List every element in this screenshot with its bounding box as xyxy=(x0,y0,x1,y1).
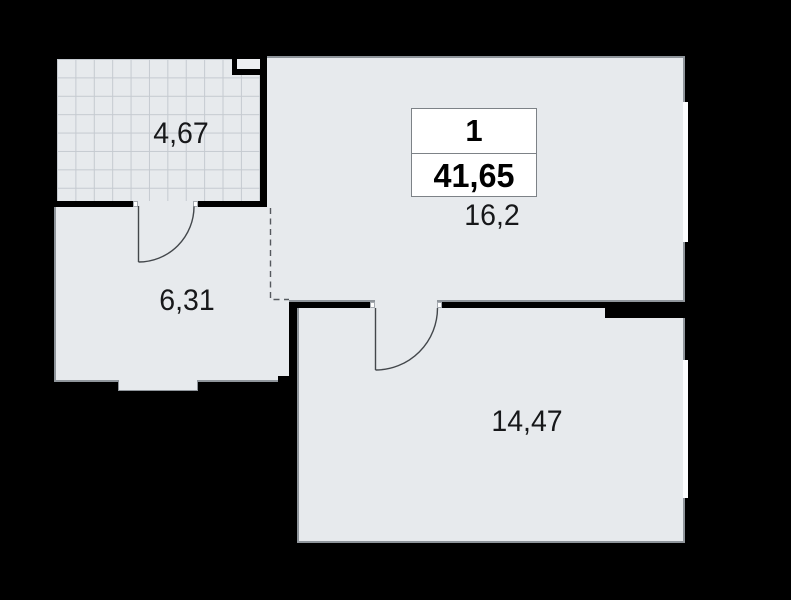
interior-door-opening xyxy=(375,299,437,308)
floor-plan-canvas: 1 41,65 4,67 6,31 16,2 14,47 xyxy=(0,0,791,600)
loggia-notch-wall-horizontal xyxy=(232,69,267,75)
interior-door-jamb-left xyxy=(370,302,375,308)
hallway-corner-wall-step xyxy=(278,376,289,382)
hallway-bedroom-dividing-wall xyxy=(289,302,297,391)
interior-wall-segment-right xyxy=(442,302,605,308)
bedroom-corner-wall-block xyxy=(605,302,687,318)
loggia-door-jamb-right xyxy=(193,201,198,207)
summary-box: 1 41,65 xyxy=(411,108,537,197)
rooms-count-value: 1 xyxy=(412,109,536,154)
interior-wall-segment-left xyxy=(289,302,370,308)
loggia-door-opening xyxy=(138,201,193,207)
living-room-area-label: 16,2 xyxy=(464,201,519,231)
bedroom-window xyxy=(683,360,688,498)
hallway-area-label: 6,31 xyxy=(159,286,214,316)
loggia-area-label: 4,67 xyxy=(153,119,208,149)
total-area-value: 41,65 xyxy=(413,154,535,197)
living-room-window xyxy=(683,102,688,242)
hallway-bay-extension xyxy=(118,380,198,391)
loggia-door-jamb-left xyxy=(133,201,138,207)
loggia-corner-notch xyxy=(237,59,260,69)
bedroom-area-label: 14,47 xyxy=(491,407,562,437)
